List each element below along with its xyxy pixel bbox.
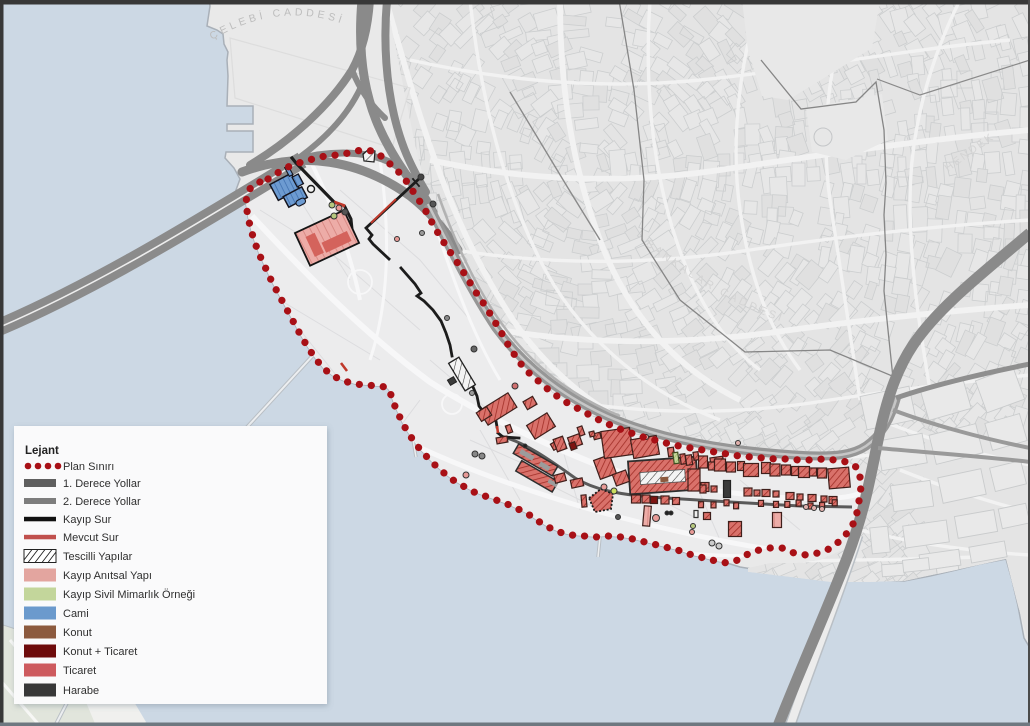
svg-text:1. Derece Yollar: 1. Derece Yollar <box>63 478 141 490</box>
svg-text:Tescilli Yapılar: Tescilli Yapılar <box>63 551 133 563</box>
svg-text:Kayıp Sur: Kayıp Sur <box>63 514 112 526</box>
svg-text:Konut: Konut <box>63 627 92 639</box>
svg-text:Konut + Ticaret: Konut + Ticaret <box>63 646 137 658</box>
svg-text:Kayıp Anıtsal Yapı: Kayıp Anıtsal Yapı <box>63 570 152 582</box>
svg-text:Ticaret: Ticaret <box>63 665 96 677</box>
svg-text:Lejant: Lejant <box>25 445 59 457</box>
svg-text:Mevcut Sur: Mevcut Sur <box>63 532 119 544</box>
svg-text:Harabe: Harabe <box>63 685 99 697</box>
svg-text:Kayıp Sivil Mimarlık Örneği: Kayıp Sivil Mimarlık Örneği <box>63 589 195 601</box>
svg-text:2. Derece Yollar: 2. Derece Yollar <box>63 496 141 508</box>
svg-text:Cami: Cami <box>63 608 89 620</box>
svg-text:Plan Sınırı: Plan Sınırı <box>63 461 114 473</box>
